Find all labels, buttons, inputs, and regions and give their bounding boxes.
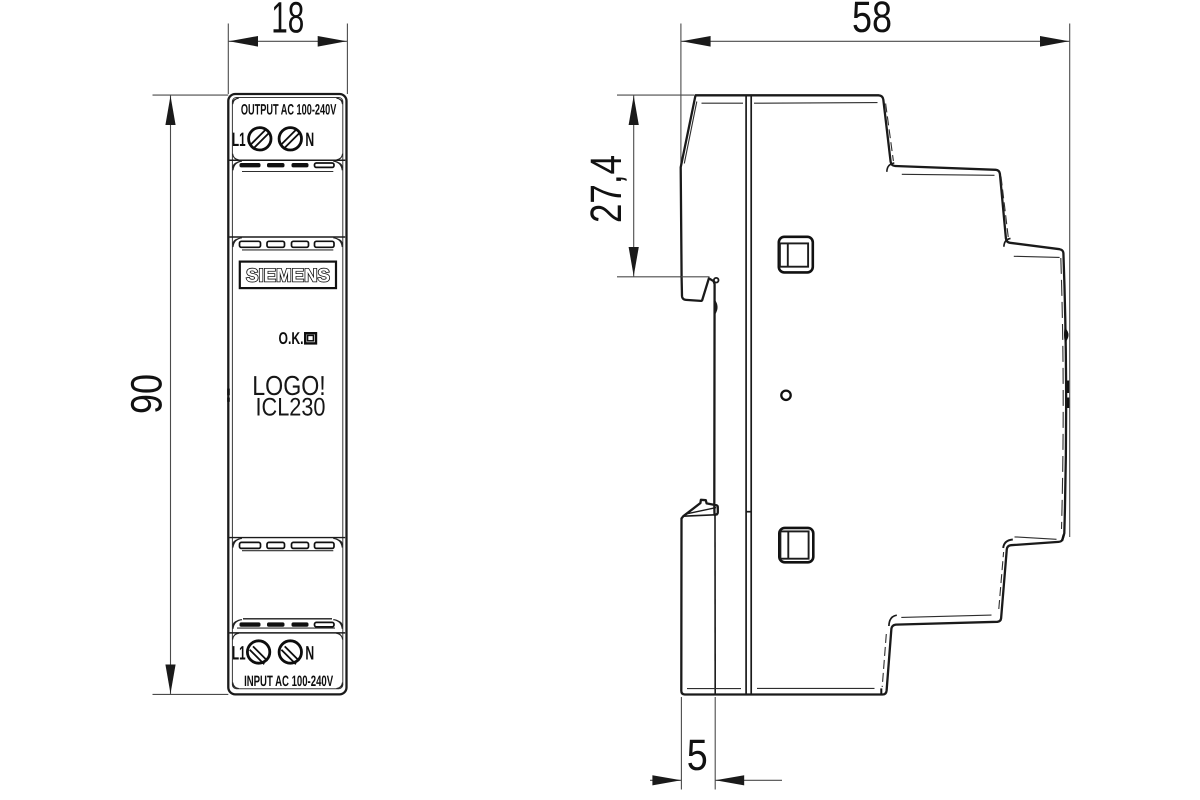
svg-text:18: 18 <box>271 0 304 43</box>
svg-text:L1: L1 <box>232 129 246 151</box>
svg-text:O.K.: O.K. <box>279 329 304 348</box>
svg-text:N: N <box>305 129 314 151</box>
svg-text:ICL230: ICL230 <box>256 394 326 422</box>
svg-text:N: N <box>305 642 314 664</box>
svg-text:SIEMENS: SIEMENS <box>246 264 330 285</box>
svg-text:90: 90 <box>123 374 172 414</box>
svg-text:27,4: 27,4 <box>582 155 631 223</box>
svg-text:5: 5 <box>687 731 708 780</box>
svg-text:INPUT AC 100-240V: INPUT AC 100-240V <box>244 673 333 690</box>
svg-text:OUTPUT AC 100-240V: OUTPUT AC 100-240V <box>241 101 337 118</box>
svg-text:L1: L1 <box>232 642 246 664</box>
svg-text:58: 58 <box>852 0 892 42</box>
